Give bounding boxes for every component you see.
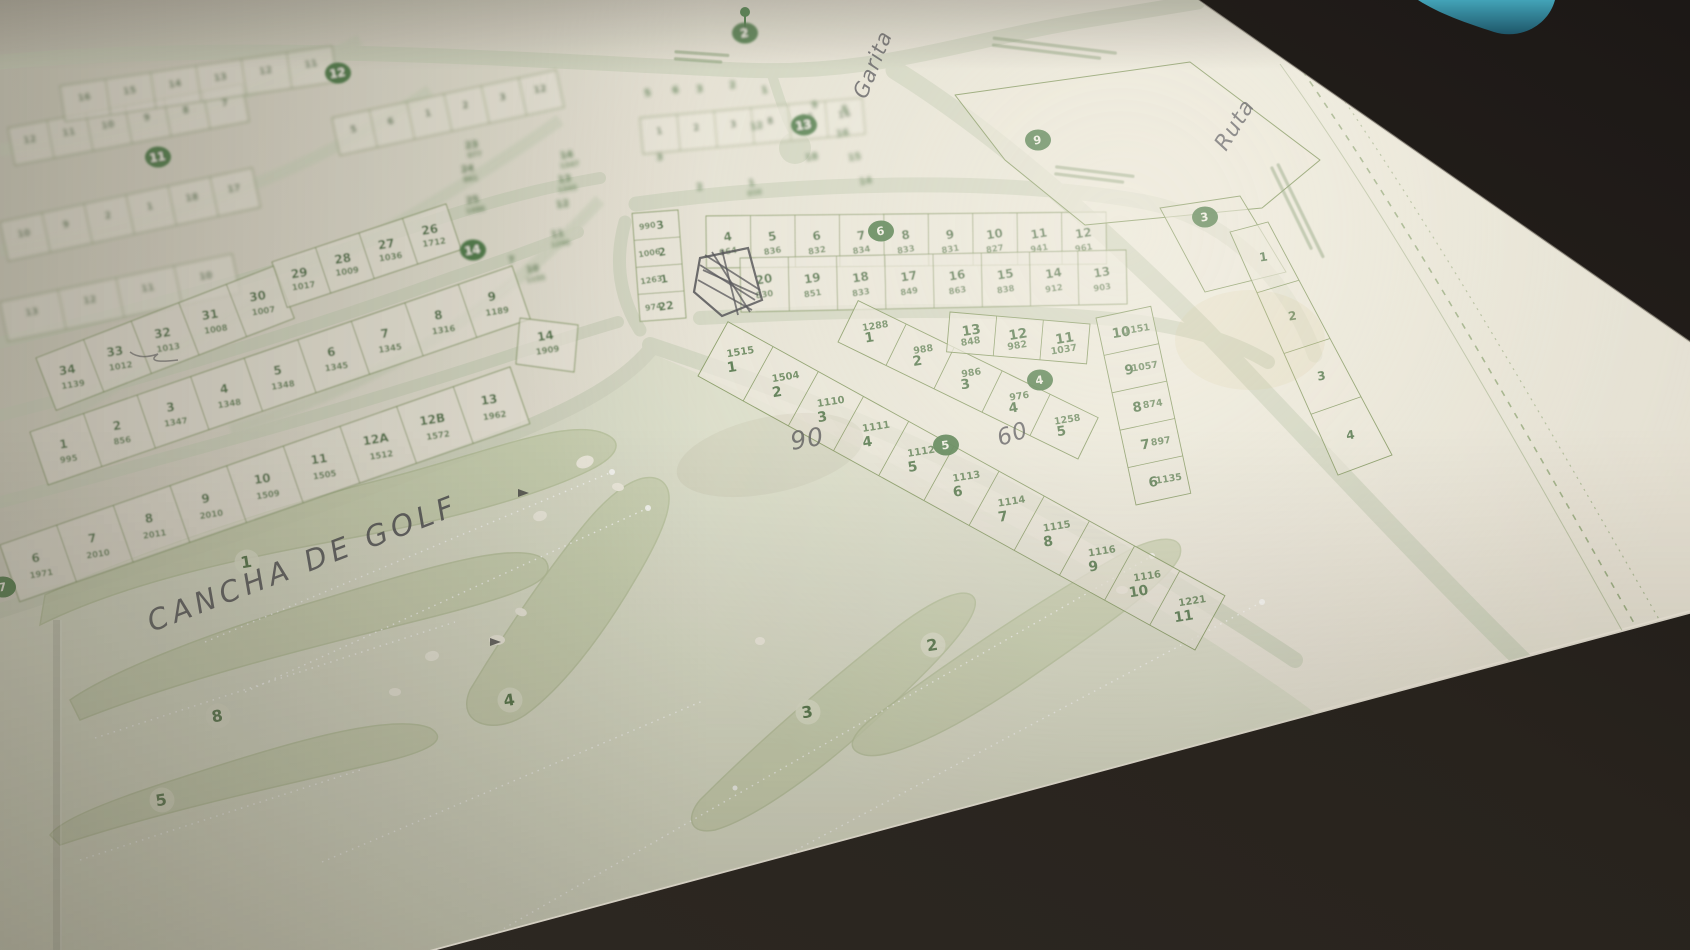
plat-map-photo: 1211109871615141312111092118175612312123… [0, 0, 1690, 950]
photo-of-plat-map: 1211109871615141312111092118175612312123… [0, 0, 1690, 950]
